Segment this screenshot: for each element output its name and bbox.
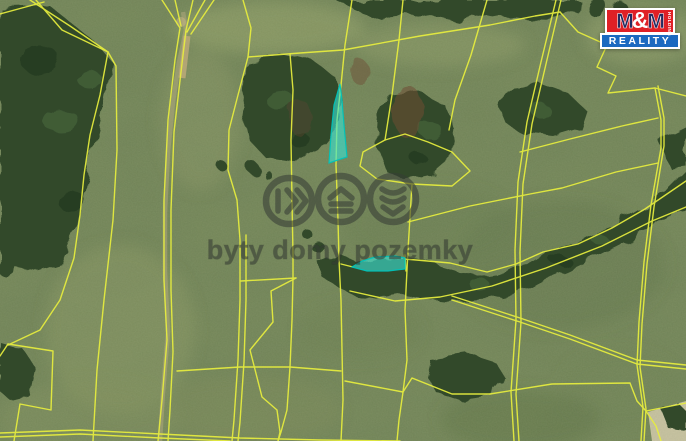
logo-top-red-box: M & M HOLDING — [605, 8, 675, 34]
mm-reality-logo: M & M HOLDING REALITY — [600, 8, 680, 49]
logo-holding-text: HOLDING — [667, 12, 672, 32]
logo-ampersand: & — [632, 9, 649, 32]
map-screenshot: byty domy pozemky M & M HOLDING REALITY — [0, 0, 686, 441]
aerial-map: byty domy pozemky — [0, 0, 686, 441]
logo-letter-m2: M — [647, 11, 664, 32]
logo-letter-m1: M — [616, 11, 633, 32]
watermark-text: byty domy pozemky — [207, 235, 474, 265]
